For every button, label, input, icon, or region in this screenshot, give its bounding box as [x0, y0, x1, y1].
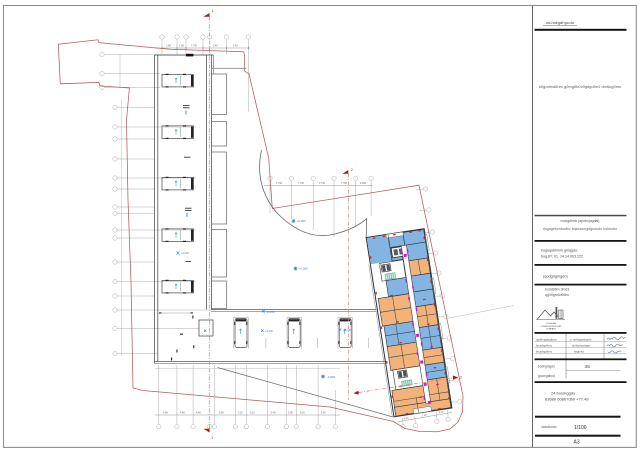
- svg-text:+0.00: +0.00: [181, 251, 189, 255]
- svg-text:bmjohgdhmo: bmjohgdhmo: [536, 343, 553, 347]
- svg-text:6.10: 6.10: [250, 412, 255, 415]
- svg-text:hsgmsd: hsgmsd: [574, 350, 584, 354]
- svg-text:4.80: 4.80: [180, 412, 185, 415]
- svg-text:b0godmd6hm g0mg6b0c9gdgd9e0 dm: b0godmd6hm g0mg6b0c9gdgd9e0 dm6og0mo: [539, 85, 622, 89]
- svg-text:7.700: 7.700: [298, 182, 305, 185]
- svg-text:24 bosmggdo: 24 bosmggdo: [551, 390, 576, 395]
- svg-text:4.80: 4.80: [196, 412, 201, 415]
- svg-text:-0.450: -0.450: [266, 310, 275, 314]
- svg-text:COMPANY: COMPANY: [546, 327, 557, 330]
- svg-text:(qodg3gmgdo): (qodg3gmgdo): [543, 275, 568, 279]
- svg-text:dgdbmgjegdgmo: dgdbmgjegdgmo: [536, 337, 557, 341]
- svg-text:bogoqobhmm gmqgdo:: bogoqobhmm gmqgdo:: [541, 248, 578, 252]
- svg-text:+0.000: +0.000: [297, 219, 307, 223]
- svg-text:7.700: 7.700: [191, 45, 198, 48]
- svg-text:bog.6?: 01. 14.14.003.122: bog.6?: 01. 14.14.003.122: [541, 255, 583, 259]
- svg-text:1.98: 1.98: [166, 45, 171, 48]
- svg-text:83680 6086?db0 +77.49: 83680 6086?db0 +77.49: [545, 397, 589, 402]
- svg-text:-4.900: -4.900: [327, 375, 336, 379]
- svg-text:ooJodgdhjoolo: ooJodgdhjoolo: [546, 20, 575, 25]
- svg-text:bodd96m 3md3: bodd96m 3md3: [545, 287, 569, 291]
- svg-text:1/100: 1/100: [574, 425, 587, 431]
- svg-text:ambymaodgdo: ambymaodgdo: [572, 343, 591, 347]
- svg-text:5.40: 5.40: [271, 412, 276, 415]
- svg-text:5.00: 5.00: [321, 412, 326, 415]
- svg-text:mdogdhob (dpobojngdal): mdogdhob (dpobojngdal): [561, 219, 600, 223]
- svg-text:dobdhodo: dobdhodo: [542, 425, 557, 429]
- svg-text:+0.00: +0.00: [265, 329, 273, 333]
- svg-text:+0.00: +0.00: [343, 328, 351, 332]
- svg-text:4.98: 4.98: [163, 412, 168, 415]
- svg-text:5.98: 5.98: [219, 412, 224, 415]
- svg-text:4.500: 4.500: [360, 182, 367, 185]
- svg-text:5.40: 5.40: [213, 45, 218, 48]
- svg-text:A3: A3: [574, 440, 580, 446]
- svg-text:+0.000: +0.000: [299, 267, 309, 271]
- svg-text:goomgdbod: goomgdbod: [538, 374, 555, 378]
- svg-text:bodhgmgdo: bodhgmgdo: [538, 364, 555, 368]
- svg-text:5.40: 5.40: [233, 45, 238, 48]
- svg-text:bmjohgdhmo: bmjohgdhmo: [536, 350, 553, 354]
- svg-text:o. anbsgosdgdeo: o. anbsgosdgdeo: [570, 337, 592, 341]
- svg-text:LOGGING: LOGGING: [546, 323, 557, 325]
- svg-text:3.20: 3.20: [238, 412, 243, 415]
- svg-text:6.30: 6.30: [300, 412, 305, 415]
- svg-text:7.700: 7.700: [276, 182, 283, 185]
- svg-text:7.700: 7.700: [341, 182, 348, 185]
- svg-text:25: 25: [585, 364, 590, 369]
- svg-text:dogdgebonbodbo bojmaomgdgeondo: dogdgebonbodbo bojmaomgdgeondo bobeobo: [543, 227, 617, 231]
- svg-text:7.700: 7.700: [319, 182, 326, 185]
- svg-text:1.98: 1.98: [179, 45, 184, 48]
- svg-text:qg39gm3d96ho: qg39gm3d96ho: [545, 293, 569, 297]
- svg-text:2.90: 2.90: [288, 412, 293, 415]
